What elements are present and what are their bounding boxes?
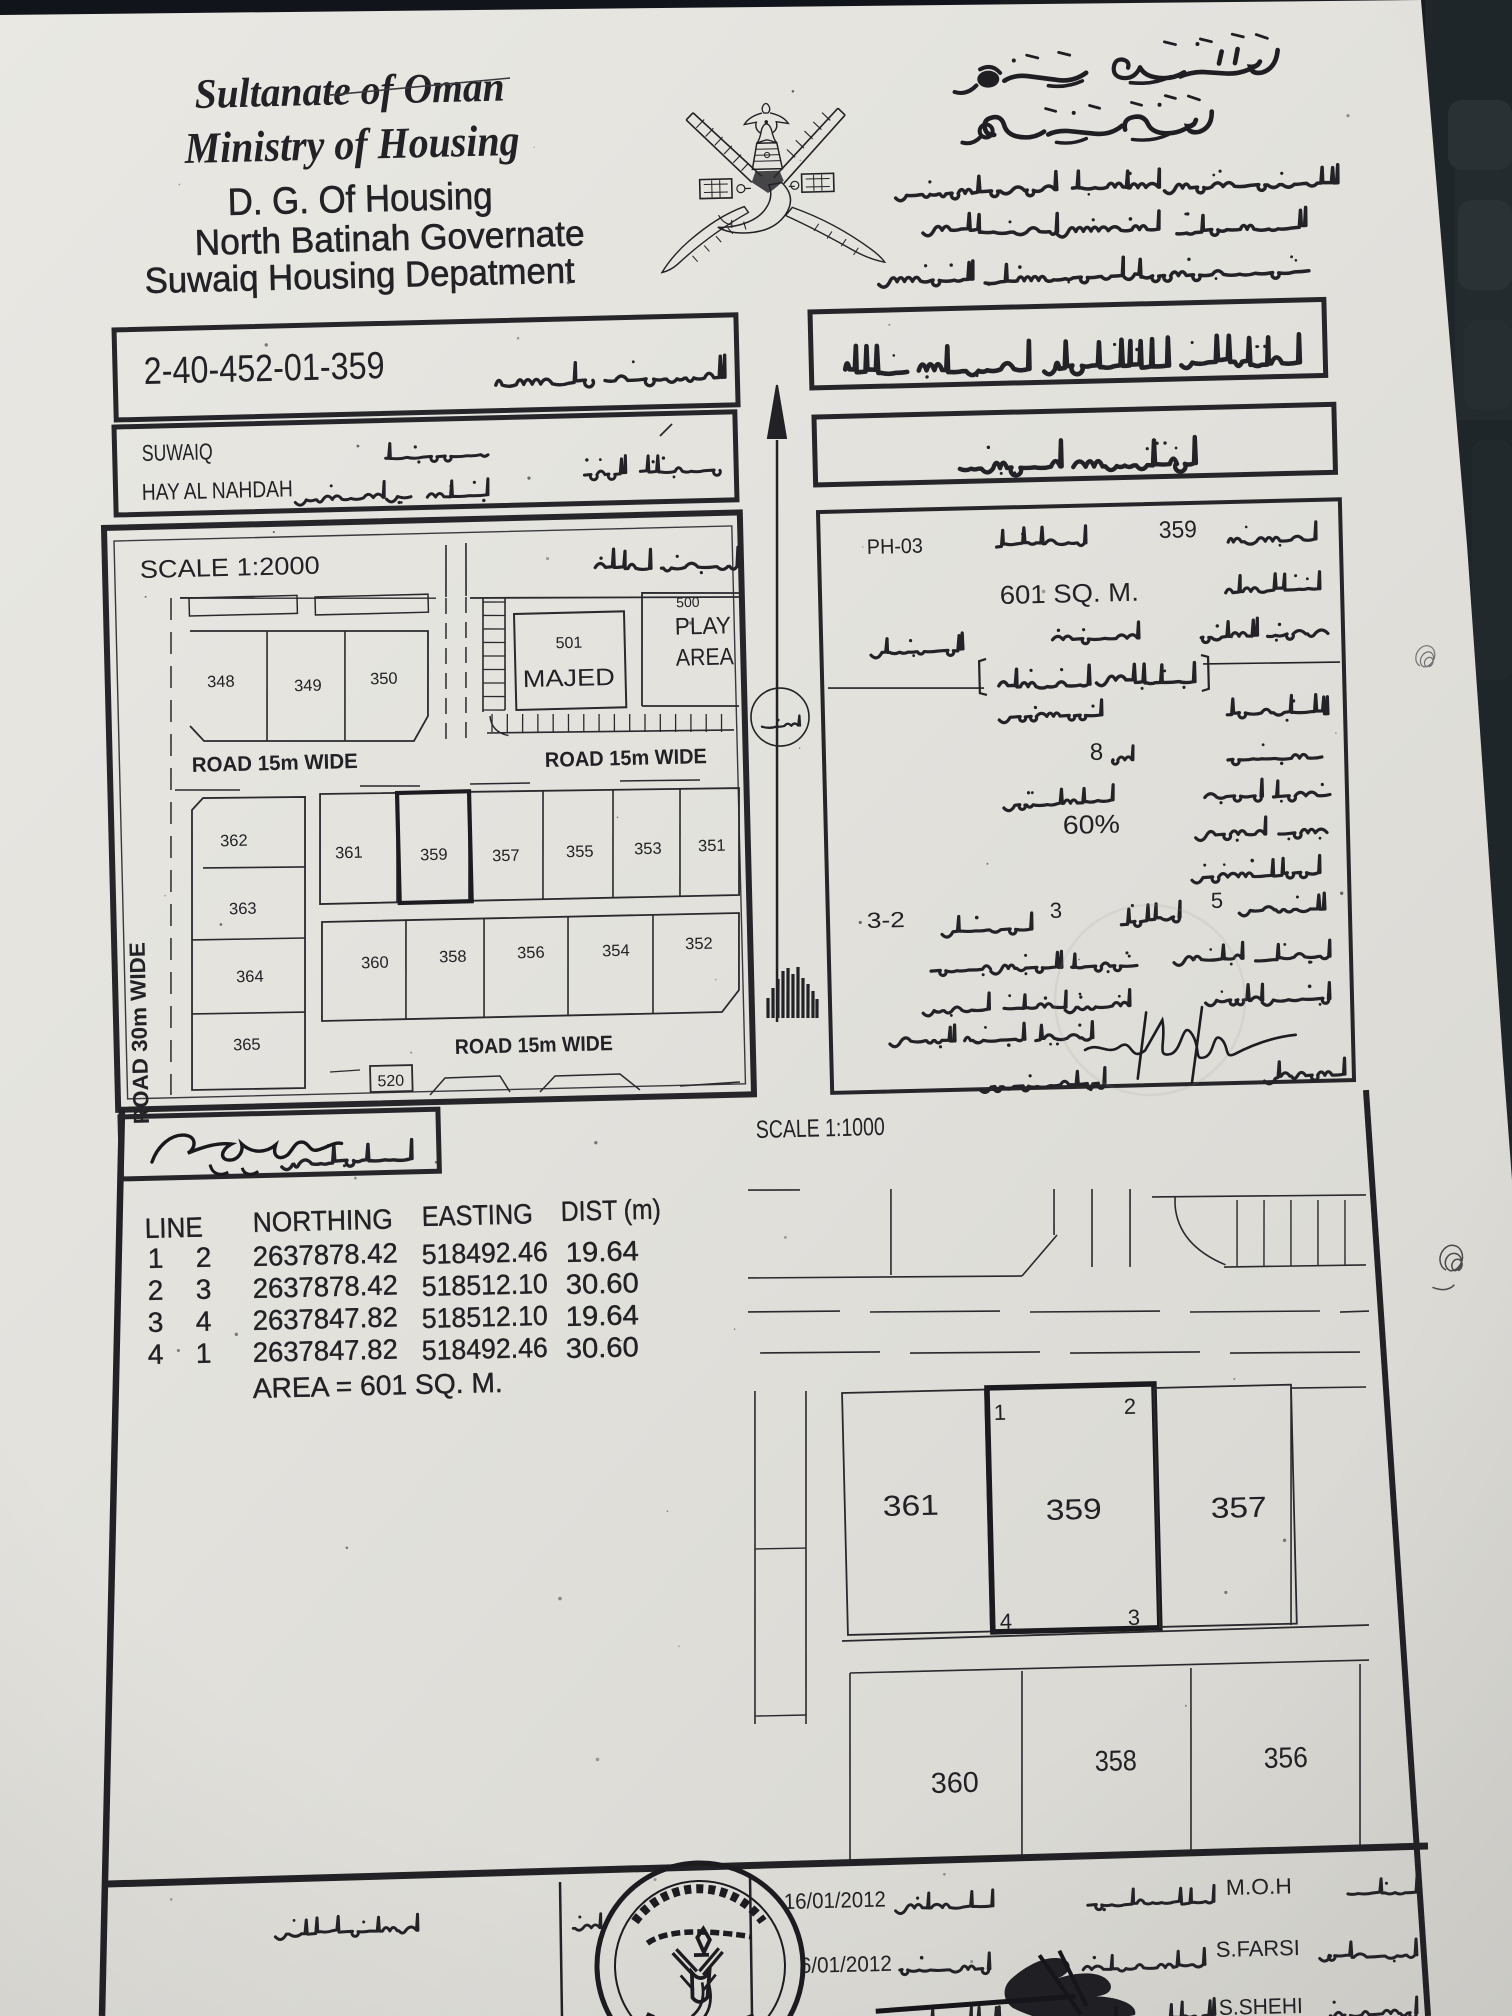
- svg-text:S.FARSI: S.FARSI: [1216, 1935, 1301, 1962]
- svg-text:3: 3: [1050, 898, 1063, 923]
- svg-text:518512.10: 518512.10: [421, 1300, 548, 1334]
- svg-text:2: 2: [1124, 1394, 1137, 1419]
- svg-text:EASTING: EASTING: [421, 1198, 533, 1232]
- svg-text:ROAD 15m WIDE: ROAD 15m WIDE: [455, 1032, 614, 1059]
- svg-text:2637847.82: 2637847.82: [252, 1333, 398, 1368]
- svg-text:365: 365: [233, 1036, 261, 1055]
- svg-text:353: 353: [634, 840, 662, 859]
- svg-text:5: 5: [1211, 888, 1224, 913]
- svg-text:Ministry of Housing: Ministry of Housing: [183, 116, 520, 173]
- svg-text:16/01/2012: 16/01/2012: [784, 1886, 887, 1913]
- svg-text:60%: 60%: [1062, 809, 1120, 840]
- svg-text:SCALE 1:1000: SCALE 1:1000: [755, 1113, 885, 1144]
- svg-text:601 SQ. M.: 601 SQ. M.: [999, 577, 1139, 610]
- svg-text:349: 349: [294, 677, 322, 696]
- svg-text:2637878.42: 2637878.42: [252, 1269, 398, 1304]
- svg-text:SUWAIQ: SUWAIQ: [141, 438, 213, 466]
- svg-text:S.SHEHI: S.SHEHI: [1219, 1993, 1304, 2016]
- svg-text:3-2: 3-2: [866, 907, 905, 933]
- svg-text:30.60: 30.60: [565, 1331, 639, 1364]
- svg-text:500: 500: [676, 594, 700, 611]
- svg-text:ROAD 15m WIDE: ROAD 15m WIDE: [545, 745, 708, 772]
- svg-text:4: 4: [147, 1339, 163, 1370]
- svg-text:ROAD 15m WIDE: ROAD 15m WIDE: [192, 750, 359, 777]
- svg-text:361: 361: [882, 1490, 939, 1523]
- svg-text:3: 3: [147, 1307, 163, 1338]
- svg-text:4: 4: [1000, 1609, 1013, 1634]
- svg-text:520: 520: [377, 1073, 404, 1091]
- svg-text:501: 501: [555, 635, 582, 653]
- svg-text:LINE: LINE: [144, 1212, 203, 1244]
- svg-text:19.64: 19.64: [565, 1235, 639, 1268]
- svg-text:358: 358: [439, 948, 467, 967]
- svg-text:DIST (m): DIST (m): [560, 1194, 661, 1227]
- svg-text:AREA: AREA: [676, 643, 735, 671]
- svg-text:2637878.42: 2637878.42: [252, 1237, 398, 1272]
- svg-text:354: 354: [602, 942, 630, 961]
- svg-text:6/01/2012: 6/01/2012: [800, 1951, 893, 1978]
- svg-text:356: 356: [1263, 1742, 1308, 1775]
- svg-text:2-40-452-01-359: 2-40-452-01-359: [143, 345, 385, 393]
- svg-text:3: 3: [195, 1274, 211, 1305]
- svg-text:2637847.82: 2637847.82: [252, 1301, 398, 1336]
- svg-text:359: 359: [420, 846, 448, 865]
- svg-text:357: 357: [1210, 1492, 1267, 1525]
- svg-text:ROAD 30m WIDE: ROAD 30m WIDE: [125, 942, 154, 1125]
- svg-text:SCALE 1:2000: SCALE 1:2000: [139, 552, 320, 584]
- svg-text:358: 358: [1094, 1745, 1137, 1778]
- svg-text:AREA = 601 SQ. M.: AREA = 601 SQ. M.: [252, 1367, 503, 1404]
- svg-text:4: 4: [195, 1306, 211, 1337]
- svg-text:2: 2: [147, 1275, 163, 1306]
- svg-text:348: 348: [207, 673, 235, 692]
- svg-text:350: 350: [370, 670, 398, 689]
- svg-text:PLAY: PLAY: [675, 612, 732, 640]
- svg-text:1: 1: [195, 1338, 211, 1369]
- svg-text:352: 352: [685, 935, 713, 954]
- svg-text:357: 357: [492, 847, 520, 866]
- svg-text:359: 359: [1159, 516, 1198, 544]
- svg-text:356: 356: [517, 944, 545, 963]
- svg-text:1: 1: [147, 1243, 163, 1274]
- svg-text:8: 8: [1090, 739, 1104, 766]
- svg-text:361: 361: [335, 844, 363, 863]
- svg-text:518512.10: 518512.10: [421, 1268, 548, 1302]
- svg-text:360: 360: [930, 1767, 979, 1800]
- svg-text:Sultanate of Oman: Sultanate of Oman: [194, 64, 505, 118]
- svg-text:3: 3: [1127, 1605, 1140, 1630]
- svg-text:19.64: 19.64: [565, 1299, 639, 1332]
- svg-text:363: 363: [229, 900, 257, 919]
- svg-text:355: 355: [566, 843, 594, 862]
- svg-text:364: 364: [236, 968, 264, 987]
- svg-text:NORTHING: NORTHING: [252, 1204, 393, 1238]
- svg-text:362: 362: [220, 832, 248, 851]
- svg-text:351: 351: [698, 837, 726, 856]
- svg-text:359: 359: [1045, 1494, 1102, 1527]
- svg-text:2: 2: [195, 1242, 211, 1273]
- svg-text:MAJED: MAJED: [522, 664, 615, 693]
- svg-text:518492.46: 518492.46: [421, 1236, 548, 1270]
- svg-text:518492.46: 518492.46: [421, 1332, 548, 1366]
- svg-text:1: 1: [994, 1400, 1007, 1425]
- svg-text:PH-03: PH-03: [867, 535, 924, 559]
- svg-text:360: 360: [361, 954, 389, 973]
- svg-text:HAY AL NAHDAH: HAY AL NAHDAH: [141, 475, 293, 505]
- svg-text:30.60: 30.60: [565, 1267, 639, 1300]
- svg-text:M.O.H: M.O.H: [1226, 1873, 1293, 1900]
